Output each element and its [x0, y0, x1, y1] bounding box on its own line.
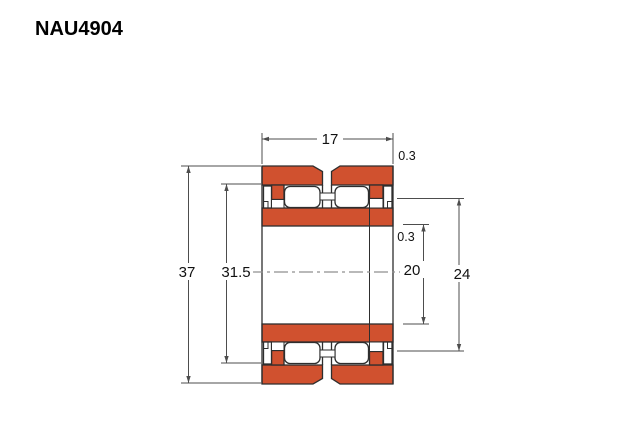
outer-ring-right	[332, 166, 394, 185]
dim-outer-raceway-label: 31.5	[221, 264, 250, 281]
inner-ring-band	[262, 208, 393, 226]
page: NAU4904	[0, 0, 640, 440]
bearing-drawing: 17 0.3 37 31.5 0.3 20 24	[0, 0, 640, 440]
dim-bore-chamfer-label: 0.3	[397, 230, 414, 244]
left-cage-strip	[272, 200, 285, 209]
right-roller	[335, 187, 369, 208]
dim-inner-raceway-label: 24	[454, 266, 471, 283]
bearing-top-half	[262, 166, 393, 226]
dim-outer-diameter-label: 37	[179, 264, 196, 281]
right-rib	[370, 185, 384, 199]
outer-ring-left	[262, 166, 323, 185]
left-rib	[272, 185, 285, 200]
dim-outer-width-label: 17	[322, 131, 339, 148]
dim-bore-diameter-label: 20	[404, 262, 421, 279]
right-cage-strip	[370, 199, 384, 209]
cage-crossbar	[320, 193, 335, 200]
bearing-body	[262, 166, 393, 384]
left-roller	[285, 187, 321, 208]
dim-outer-chamfer-label: 0.3	[398, 149, 415, 163]
bearing-bottom-half	[262, 324, 393, 384]
